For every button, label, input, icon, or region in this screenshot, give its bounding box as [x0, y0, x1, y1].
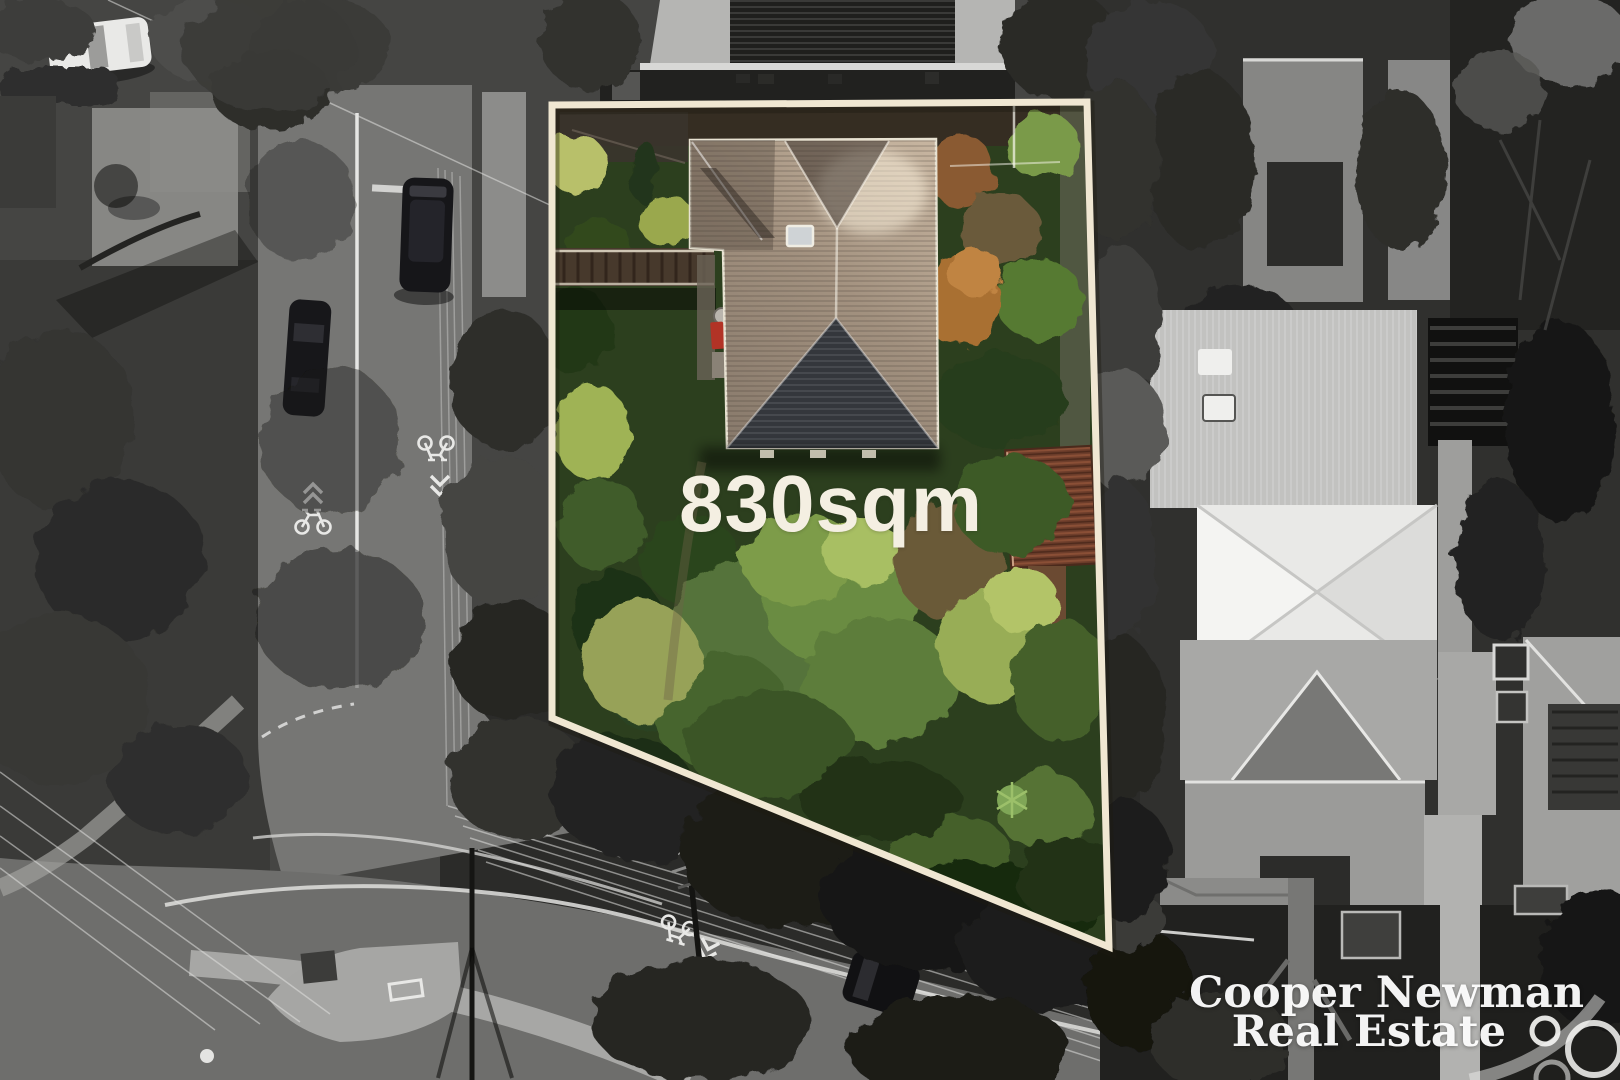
main-house-roof: [690, 139, 940, 471]
house-top-center: [600, 0, 1015, 105]
car-suv: [394, 177, 458, 306]
aerial-photo: 830sqm Cooper Newman Real Estate: [0, 0, 1620, 1080]
brand-name-line2: Real Estate: [1232, 1011, 1506, 1054]
aerial-photo-scene: [0, 0, 1620, 1080]
